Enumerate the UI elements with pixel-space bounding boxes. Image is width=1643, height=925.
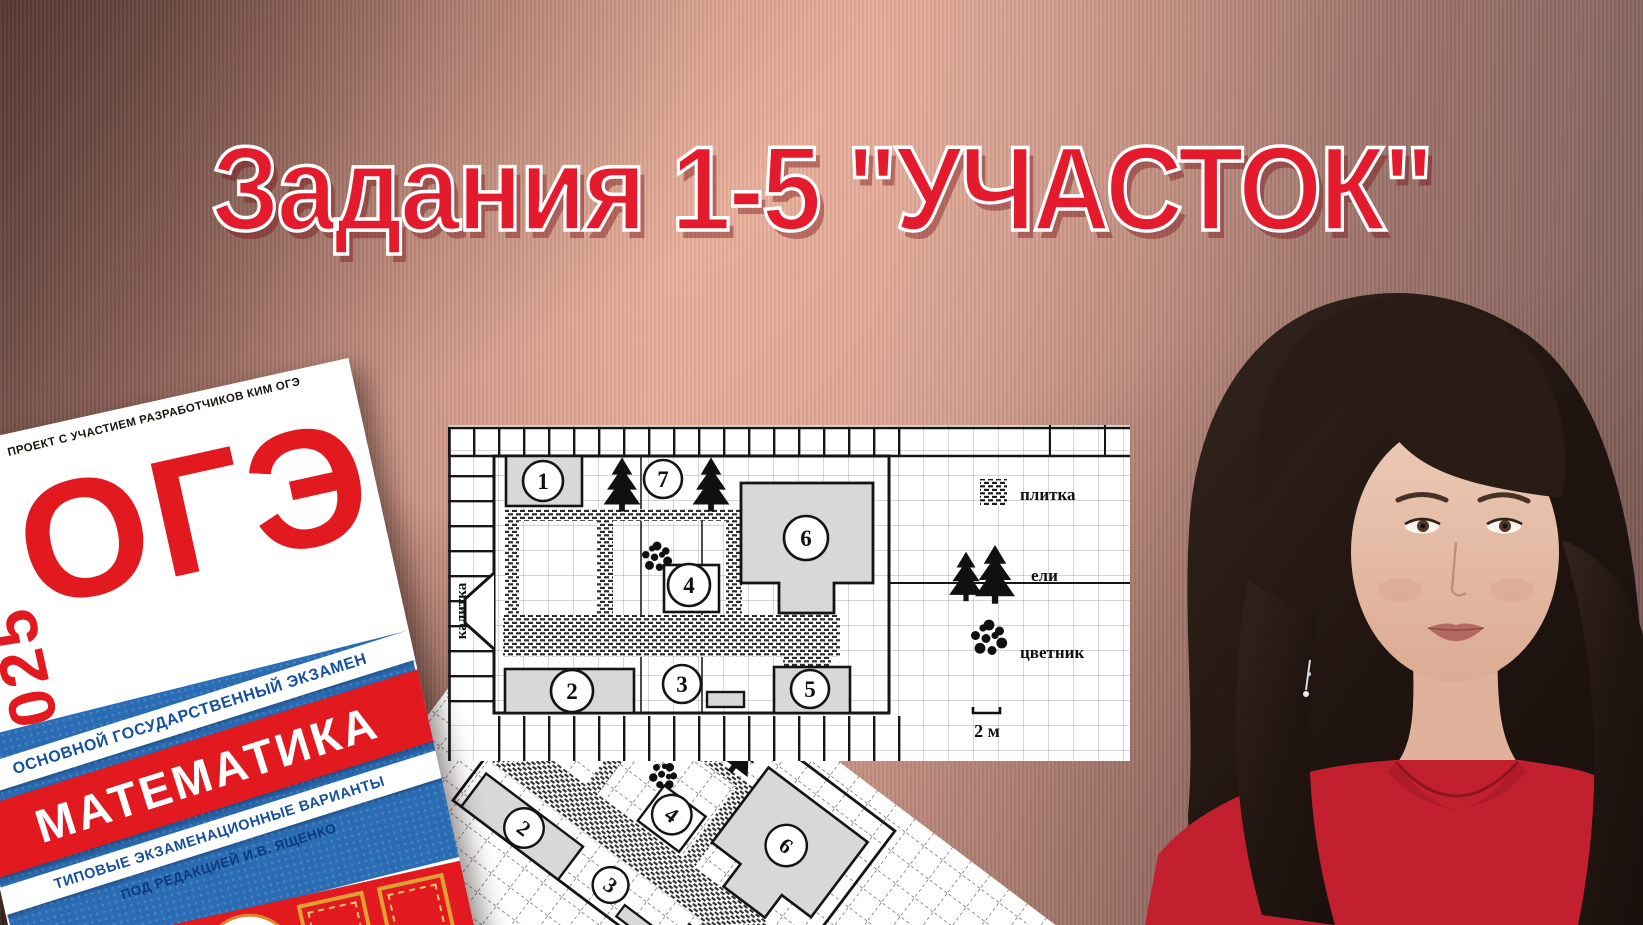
tile-swatch: [980, 479, 1007, 506]
svg-text:плитка: плитка: [1020, 485, 1076, 504]
legend-scale: 2 м: [973, 707, 1000, 741]
video-thumbnail: 1 7 6 4 2: [0, 0, 1643, 925]
svg-text:ели: ели: [1031, 566, 1058, 585]
ornament-tile: [376, 873, 457, 925]
svg-text:цветник: цветник: [1020, 643, 1084, 662]
svg-text:2 м: 2 м: [974, 721, 1000, 741]
main-plan: калитка плитка ели цветник: [448, 425, 1130, 761]
presenter-portrait: [1100, 290, 1643, 925]
gate-label: калитка: [454, 582, 470, 639]
ornament-tile: [296, 891, 377, 925]
page-title: Задания 1-5 "УЧАСТОК": [82, 120, 1561, 258]
